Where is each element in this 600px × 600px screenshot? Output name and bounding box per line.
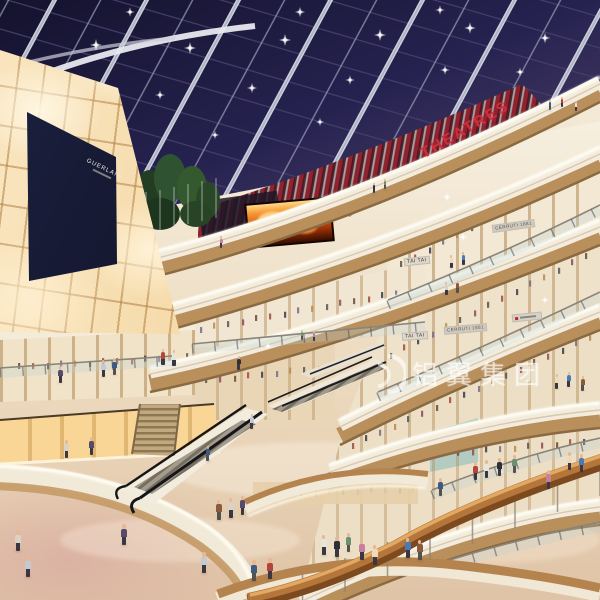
person: [300, 330, 304, 341]
person: [14, 530, 22, 551]
person: [312, 331, 316, 342]
person: [333, 537, 341, 557]
person: [449, 255, 454, 268]
person: [554, 374, 560, 389]
person: [320, 535, 328, 555]
person: [236, 356, 241, 370]
person: [566, 372, 572, 387]
person: [437, 478, 444, 496]
person: [455, 280, 460, 293]
person: [483, 460, 490, 478]
person: [580, 376, 586, 391]
person: [404, 538, 412, 558]
person: [239, 496, 246, 515]
mall-atrium-rendering: GUERLAIN THEATRES TAI TAI CERRUTI 1881 T…: [0, 0, 600, 600]
person: [545, 470, 552, 489]
person: [383, 179, 387, 190]
person: [219, 236, 223, 248]
sign-text-bar: [520, 315, 536, 319]
person: [574, 101, 578, 112]
person: [345, 533, 352, 552]
person: [200, 552, 208, 573]
person: [63, 440, 70, 458]
person: [358, 540, 366, 560]
person: [250, 560, 258, 581]
person: [371, 545, 379, 565]
person: [560, 97, 564, 108]
red-diamond-logo-icon: [515, 316, 518, 319]
person: [111, 358, 117, 375]
person: [496, 458, 503, 476]
person: [215, 500, 223, 520]
person: [416, 540, 424, 560]
person: [511, 455, 518, 473]
person: [548, 100, 552, 111]
person: [171, 350, 177, 366]
person: [578, 454, 585, 472]
person: [372, 183, 376, 194]
person: [57, 366, 63, 383]
person: [24, 556, 32, 577]
person: [461, 252, 466, 265]
person: [249, 414, 255, 429]
person: [120, 524, 128, 545]
person: [472, 462, 479, 480]
person: [227, 498, 235, 518]
person: [444, 282, 449, 295]
person: [160, 349, 166, 365]
person: [266, 558, 274, 579]
person: [566, 452, 573, 470]
person: [205, 446, 211, 461]
person: [100, 360, 106, 377]
person: [88, 437, 95, 455]
